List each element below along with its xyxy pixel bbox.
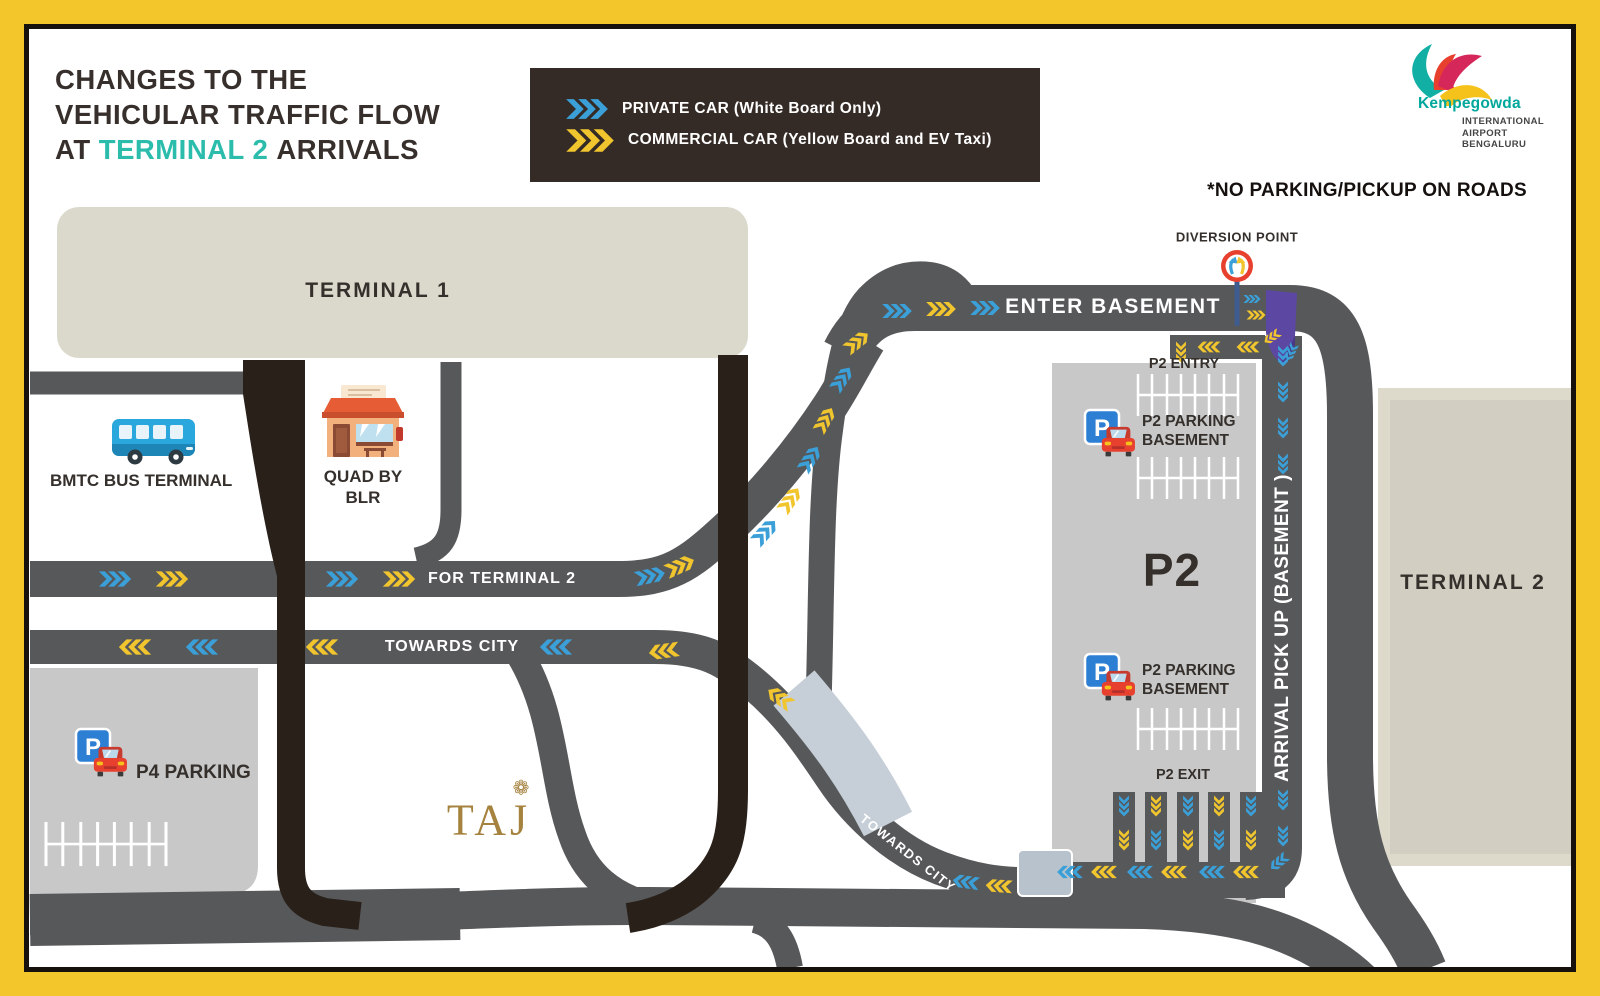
bus-window [119,425,132,439]
terminal1-label: TERMINAL 1 [305,279,451,303]
taj-flower-icon: ❁ [513,776,530,801]
kiosk-roof-edge [322,412,404,418]
kiosk-counter [356,442,393,446]
legend-private-label: PRIVATE CAR (White Board Only) [622,100,881,118]
p2-exit-label: P2 EXIT [1156,767,1210,783]
enter-basement-label: ENTER BASEMENT [1005,295,1221,319]
title-line3-suffix: ARRIVALS [276,134,419,165]
bus-window [170,425,183,439]
private-car-chevron-icon [564,98,610,120]
logo-sub3: BENGALURU [1462,139,1544,151]
logo-sub1: INTERNATIONAL [1462,116,1544,128]
no-parking-note: *NO PARKING/PICKUP ON ROADS [1207,180,1527,202]
title-line3: AT TERMINAL 2 ARRIVALS [55,132,440,167]
p2-parking-basement-upper-label: P2 PARKING BASEMENT [1142,413,1236,450]
sign-post [1235,278,1240,326]
diversion-point-label: DIVERSION POINT [1176,230,1298,245]
bus-icon [112,419,195,465]
towards-city-label: TOWARDS CITY [385,638,519,656]
logo-sub2: AIRPORT [1462,128,1544,140]
quad-label-line1: QUAD BY [324,466,402,487]
for-terminal2-label: FOR TERMINAL 2 [428,570,576,588]
bus-window [136,425,149,439]
taj-label: TAJ [447,795,531,846]
airport-logo-subtext: INTERNATIONAL AIRPORT BENGALURU [1462,116,1544,151]
kiosk-stool-leg [381,451,384,457]
p4-parking-label: P4 PARKING [136,762,251,784]
road-terminal1-stub [416,362,451,558]
kiosk-sign [341,385,386,400]
title-line3-highlight: TERMINAL 2 [99,134,269,165]
p2-parking-line1: P2 PARKING [1142,413,1236,432]
p2-parking-line2: BASEMENT [1142,681,1236,700]
kiosk-stool [364,448,386,451]
p2-big-label: P2 [1143,543,1201,597]
sign-face [1226,255,1249,278]
quad-label: QUAD BY BLR [324,466,402,508]
p2-parking-basement-lower-label: P2 PARKING BASEMENT [1142,662,1236,699]
quad-kiosk-icon [322,385,404,457]
title-line2: VEHICULAR TRAFFIC FLOW [55,97,440,132]
title-line3-prefix: AT [55,134,91,165]
bus-window [153,425,166,439]
legend-row-commercial: COMMERCIAL CAR (Yellow Board and EV Taxi… [564,128,1040,153]
bmtc-label: BMTC BUS TERMINAL [50,471,232,491]
road-bottom-exit-stub [755,920,790,968]
commercial-car-chevron-icon [564,128,616,153]
terminal2-building [1390,400,1572,854]
arrival-pickup-label: ARRIVAL PICK UP (BASEMENT ) [1272,474,1294,782]
legend-box: PRIVATE CAR (White Board Only) COMMERCIA… [530,68,1040,182]
toll-booth [1018,850,1072,896]
p2-entry-label: P2 ENTRY [1149,356,1219,372]
legend-row-private: PRIVATE CAR (White Board Only) [564,98,1040,120]
airport-logo-name: Kempegowda [1418,95,1521,113]
bus-hub [132,454,138,460]
page-title: CHANGES TO THE VEHICULAR TRAFFIC FLOW AT… [55,62,440,167]
road-bottom-wide [30,914,460,920]
bus-light [186,447,193,450]
kiosk-door-panel [336,428,347,453]
dark-road-left-pad [243,360,278,580]
terminal2-label: TERMINAL 2 [1400,571,1546,595]
poster-frame: P P P [24,24,1576,972]
legend-commercial-label: COMMERCIAL CAR (Yellow Board and EV Taxi… [628,131,992,149]
kiosk-lamp [396,427,403,441]
p2-parking-line2: BASEMENT [1142,432,1236,451]
p2-parking-line1: P2 PARKING [1142,662,1236,681]
title-line1: CHANGES TO THE [55,62,440,97]
road-south-connector [520,655,658,908]
map-canvas: P P P [24,24,1576,972]
kiosk-stool-leg [366,451,369,457]
bus-hub [173,454,179,460]
quad-label-line2: BLR [324,487,402,508]
